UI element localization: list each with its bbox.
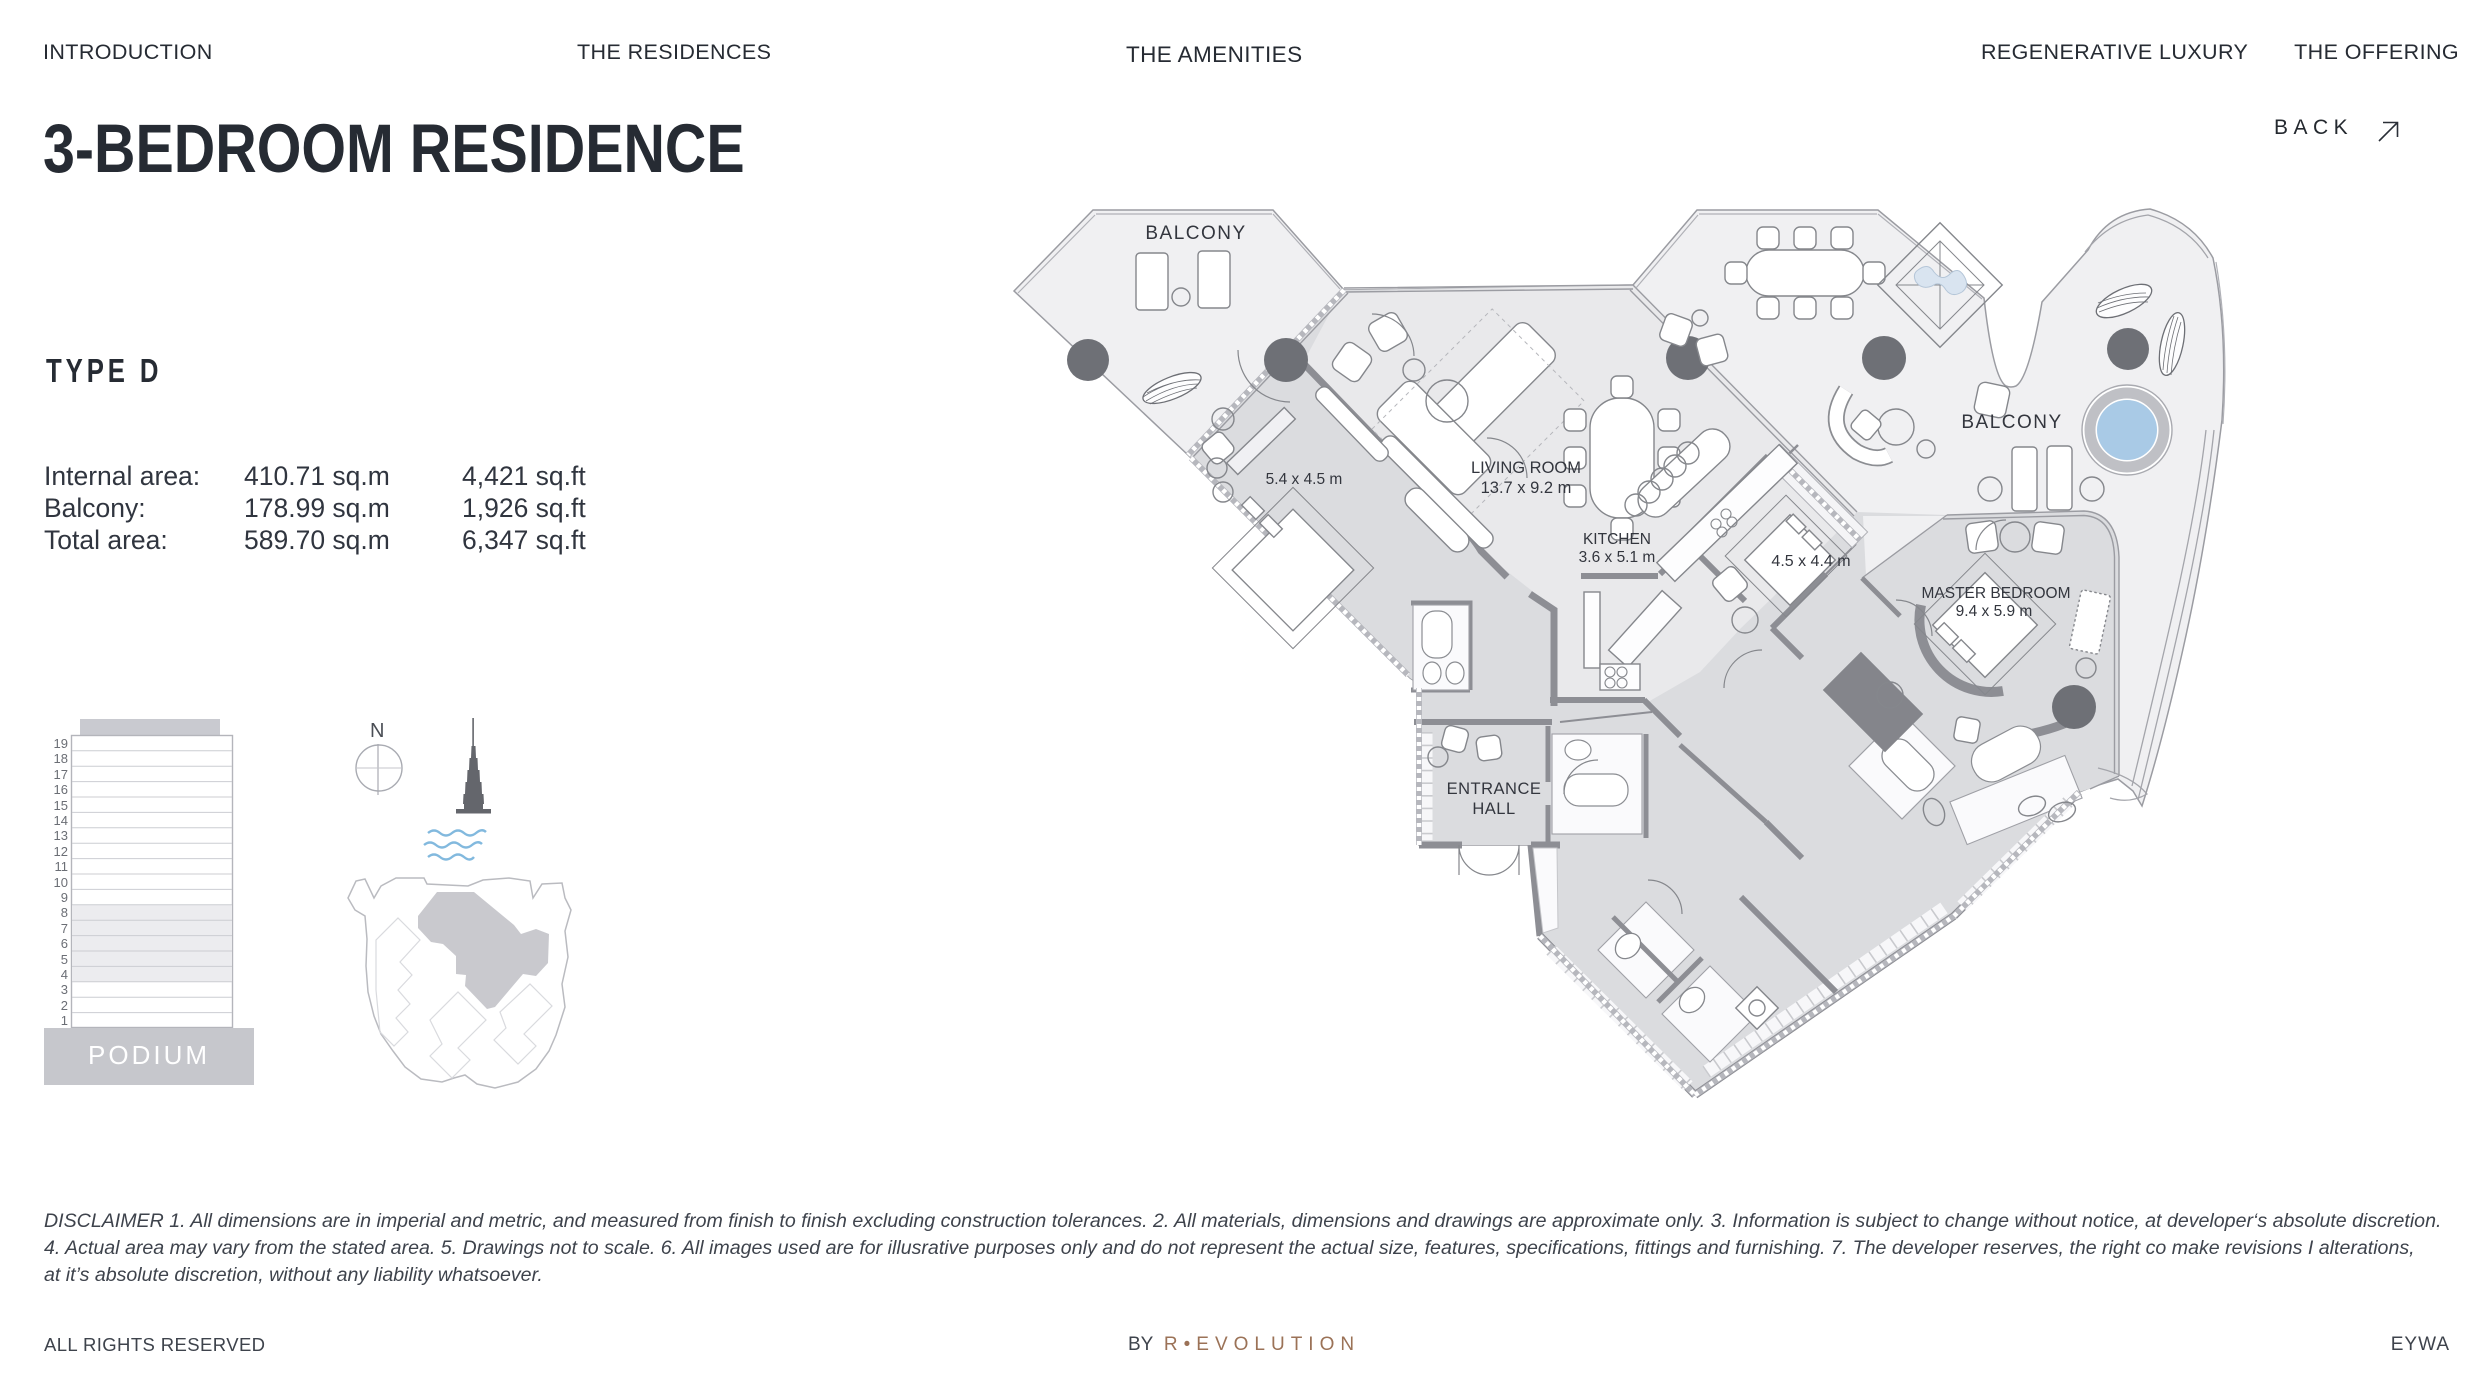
svg-text:19: 19: [54, 736, 68, 751]
svg-text:17: 17: [54, 767, 68, 782]
svg-text:8: 8: [61, 905, 68, 920]
svg-text:5: 5: [61, 952, 68, 967]
svg-text:7: 7: [61, 921, 68, 936]
svg-text:4.5 x 4.4 m: 4.5 x 4.4 m: [1771, 553, 1850, 570]
svg-text:MASTER BEDROOM: MASTER BEDROOM: [1922, 585, 2071, 602]
svg-text:14: 14: [54, 813, 68, 828]
svg-text:ENTRANCE: ENTRANCE: [1447, 780, 1542, 798]
svg-text:11: 11: [55, 859, 69, 874]
svg-text:5.4 x 4.5 m: 5.4 x 4.5 m: [1266, 471, 1343, 488]
svg-text:10: 10: [54, 875, 68, 890]
svg-text:16: 16: [54, 782, 68, 797]
svg-text:BALCONY: BALCONY: [1961, 412, 2062, 433]
svg-text:1: 1: [61, 1013, 68, 1028]
svg-text:9.4 x 5.9 m: 9.4 x 5.9 m: [1956, 603, 2033, 620]
svg-text:18: 18: [54, 751, 68, 766]
svg-text:12: 12: [54, 844, 68, 859]
svg-text:BALCONY: BALCONY: [1145, 223, 1246, 244]
svg-text:13: 13: [54, 828, 68, 843]
svg-text:6: 6: [61, 936, 68, 951]
svg-text:KITCHEN: KITCHEN: [1583, 531, 1651, 548]
svg-text:LIVING ROOM: LIVING ROOM: [1471, 459, 1581, 477]
svg-text:3.6 x 5.1 m: 3.6 x 5.1 m: [1579, 549, 1656, 566]
svg-text:PODIUM: PODIUM: [88, 1040, 210, 1070]
svg-text:2: 2: [61, 998, 68, 1013]
svg-text:9: 9: [61, 890, 68, 905]
svg-text:15: 15: [54, 798, 68, 813]
svg-text:HALL: HALL: [1472, 800, 1515, 818]
svg-text:13.7 x 9.2 m: 13.7 x 9.2 m: [1481, 479, 1572, 497]
svg-text:3: 3: [61, 982, 68, 997]
svg-text:N: N: [370, 720, 384, 742]
svg-text:4: 4: [61, 967, 68, 982]
